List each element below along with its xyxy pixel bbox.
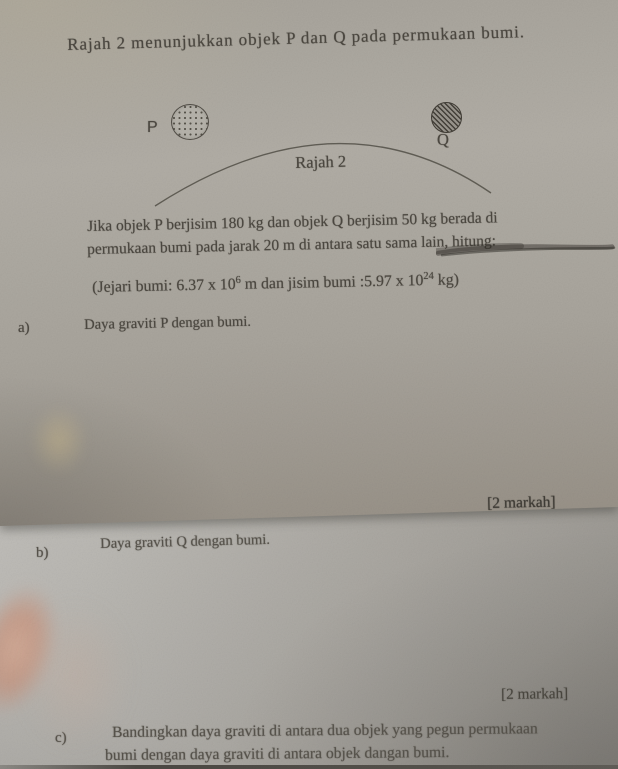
object-q-circle [431,102,462,133]
object-p-circle [171,104,209,140]
earth-surface-arc [0,0,618,540]
figure-caption: Rajah 2 [295,152,346,173]
object-p-label: P [147,119,158,137]
item-a-label: a) [18,320,30,337]
pen-scribble [436,234,616,265]
object-q-label: Q [437,130,449,150]
paper-smudge [30,405,88,475]
exam-paper-photo: b) Daya graviti Q dengan bumi. [2 markah… [0,0,618,769]
given-part1: (Jejari bumi: 6.37 x 10 [92,276,236,296]
item-a-marks: [2 markah] [487,494,556,513]
page-top-sheet: Rajah 2 menunjukkan objek P dan Q pada p… [0,0,618,540]
page-top-wrap: Rajah 2 menunjukkan objek P dan Q pada p… [0,0,618,769]
given-exponent-2: 24 [423,271,434,282]
given-part3: kg) [434,271,459,289]
given-part2: m dan jisim bumi :5.97 x 10 [241,272,424,293]
item-a-text: Daya graviti P dengan bumi. [84,314,251,334]
